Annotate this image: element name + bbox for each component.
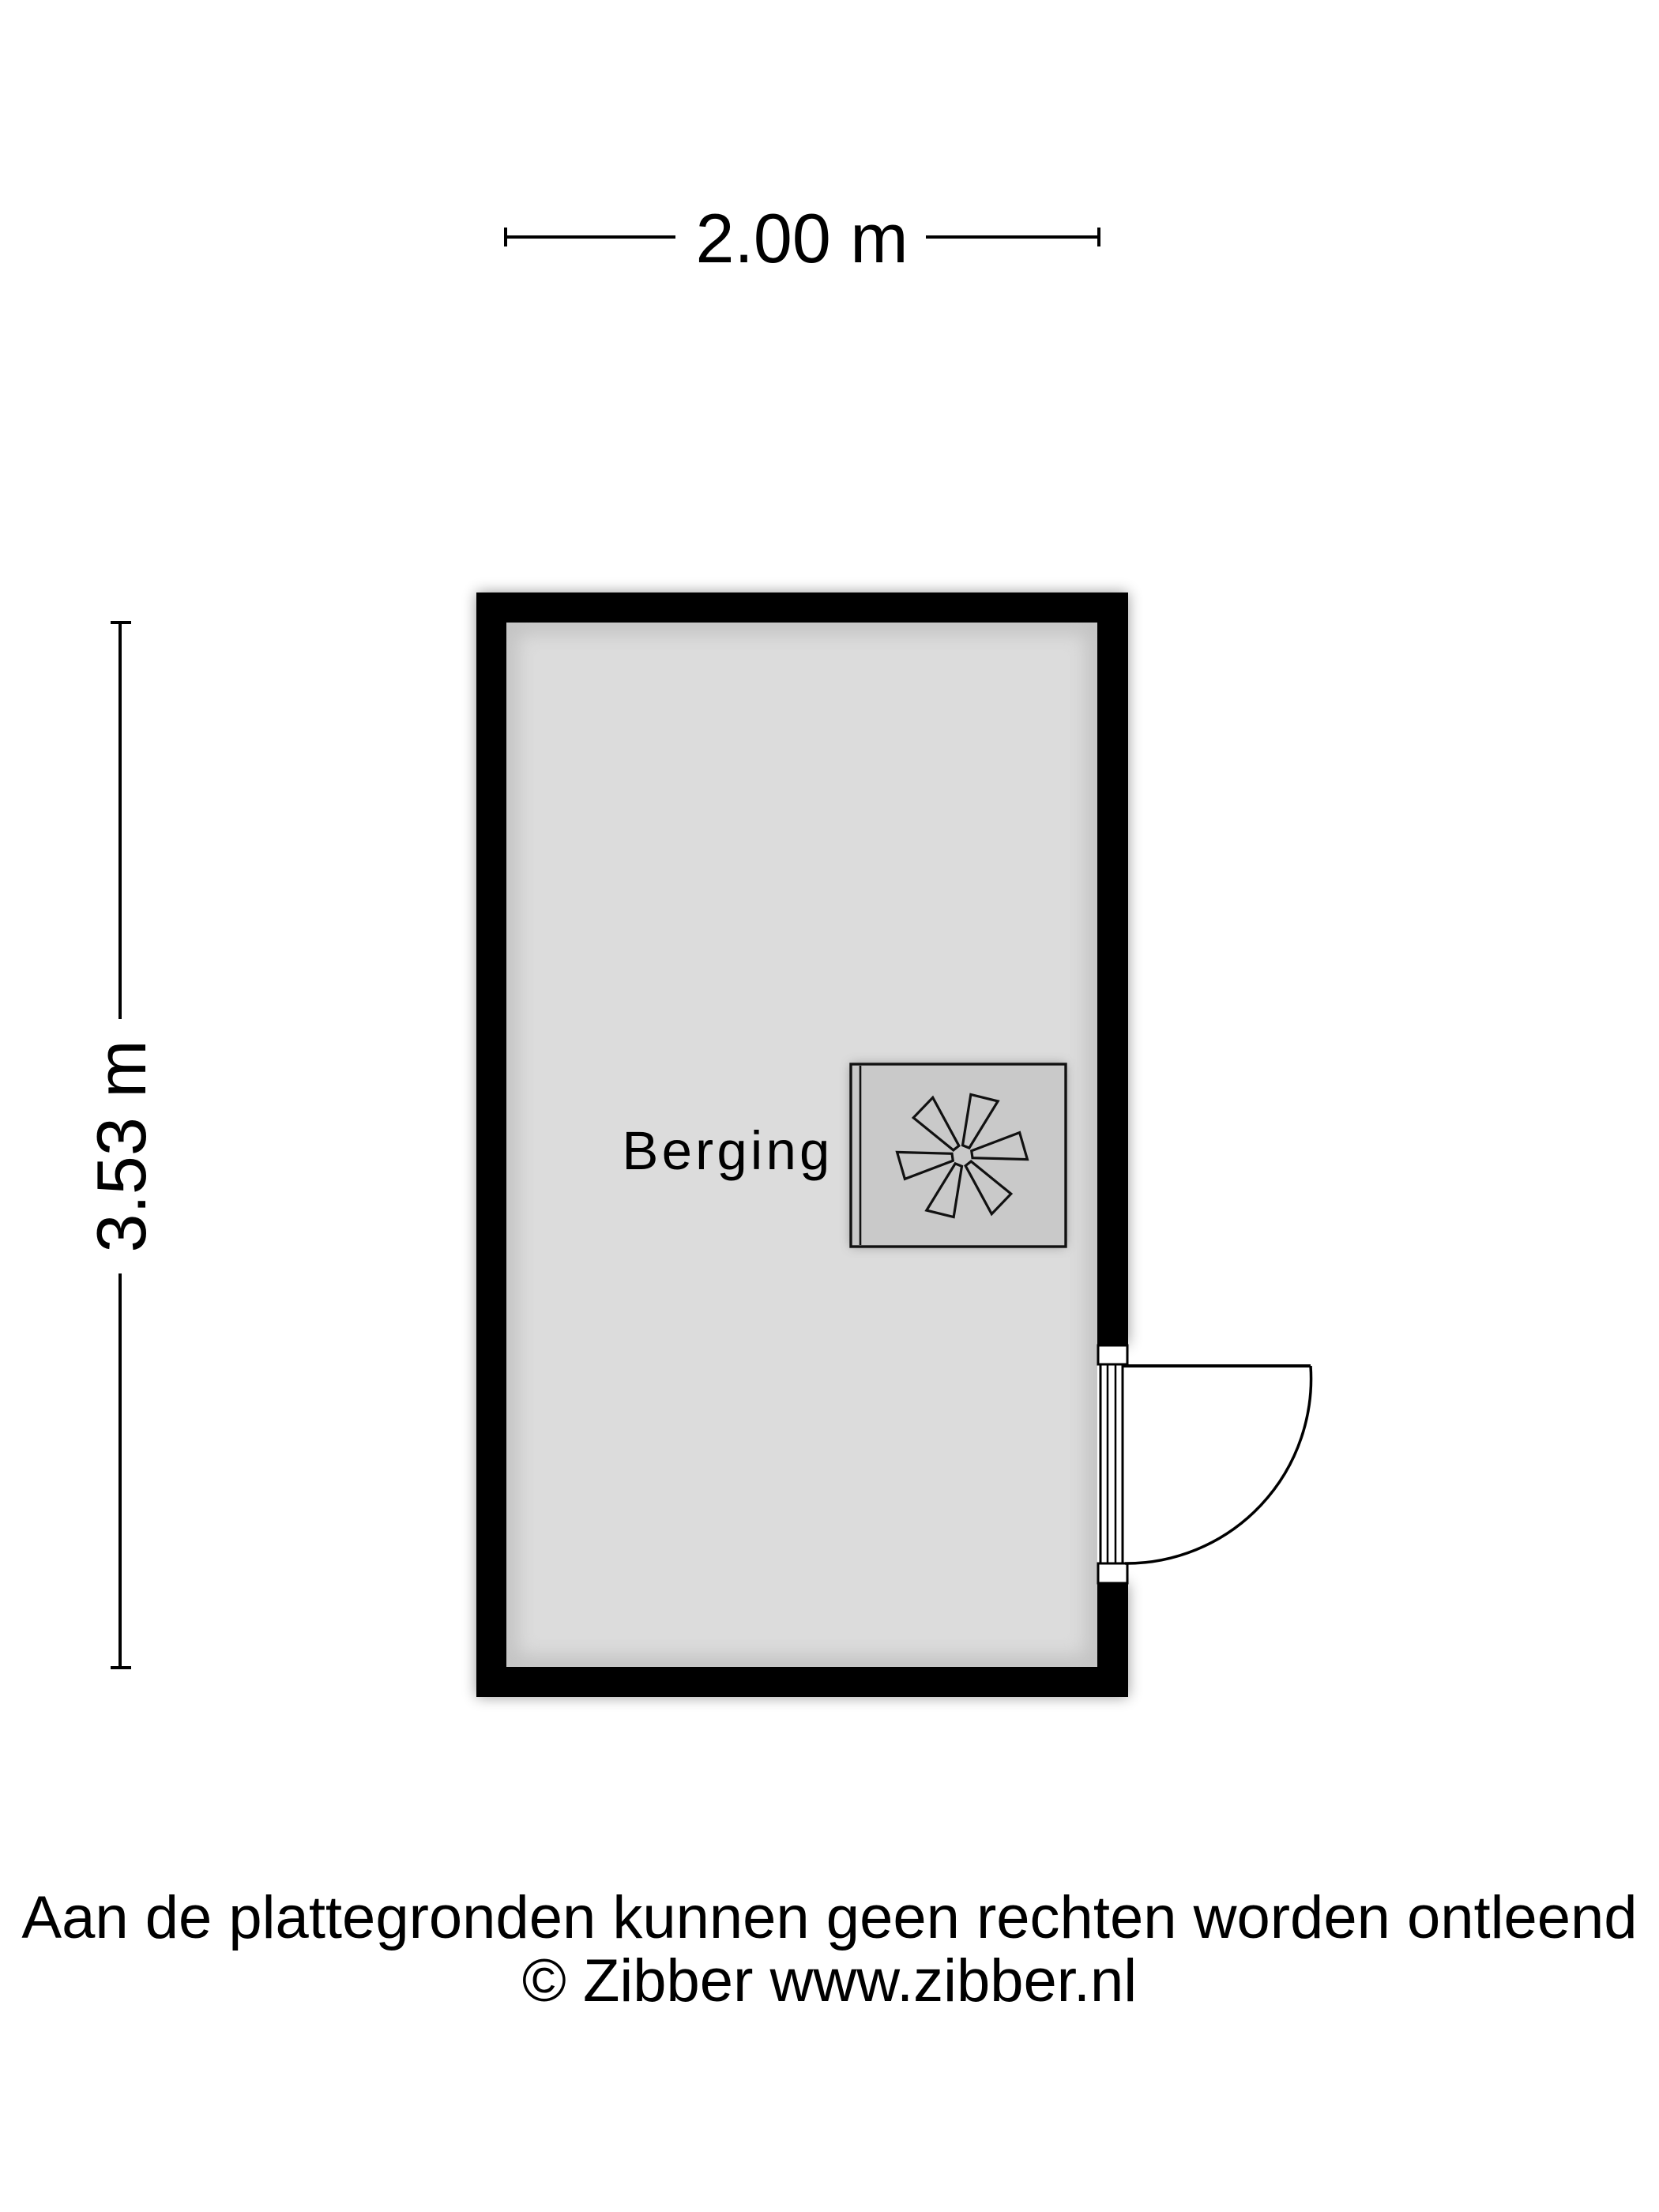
svg-text:© Zibber www.zibber.nl: © Zibber www.zibber.nl bbox=[522, 1947, 1137, 2014]
svg-text:Berging: Berging bbox=[622, 1120, 833, 1181]
svg-text:3.53 m: 3.53 m bbox=[82, 1040, 160, 1252]
svg-text:2.00 m: 2.00 m bbox=[695, 199, 908, 277]
svg-text:Aan de plattegronden kunnen ge: Aan de plattegronden kunnen geen rechten… bbox=[21, 1884, 1637, 1951]
